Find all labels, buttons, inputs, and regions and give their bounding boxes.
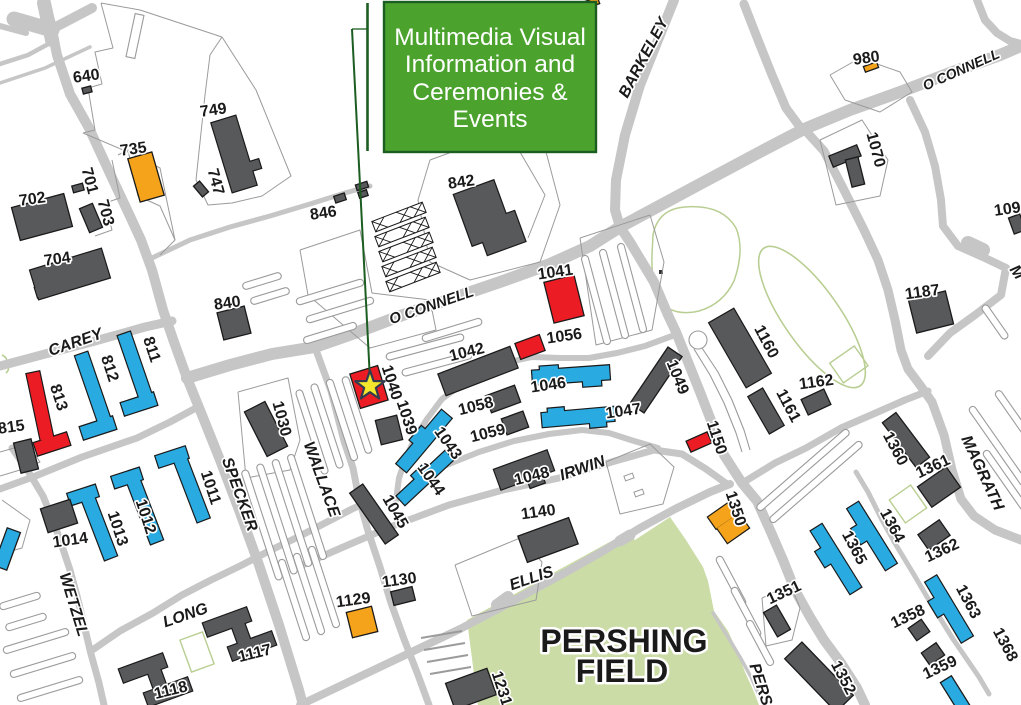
svg-text:FIELD: FIELD xyxy=(576,653,668,689)
svg-text:109: 109 xyxy=(993,199,1021,220)
svg-text:Information and: Information and xyxy=(405,51,575,78)
svg-text:Multimedia Visual: Multimedia Visual xyxy=(394,24,586,51)
svg-text:Events: Events xyxy=(453,106,528,133)
svg-text:Ceremonies &: Ceremonies & xyxy=(412,79,567,106)
